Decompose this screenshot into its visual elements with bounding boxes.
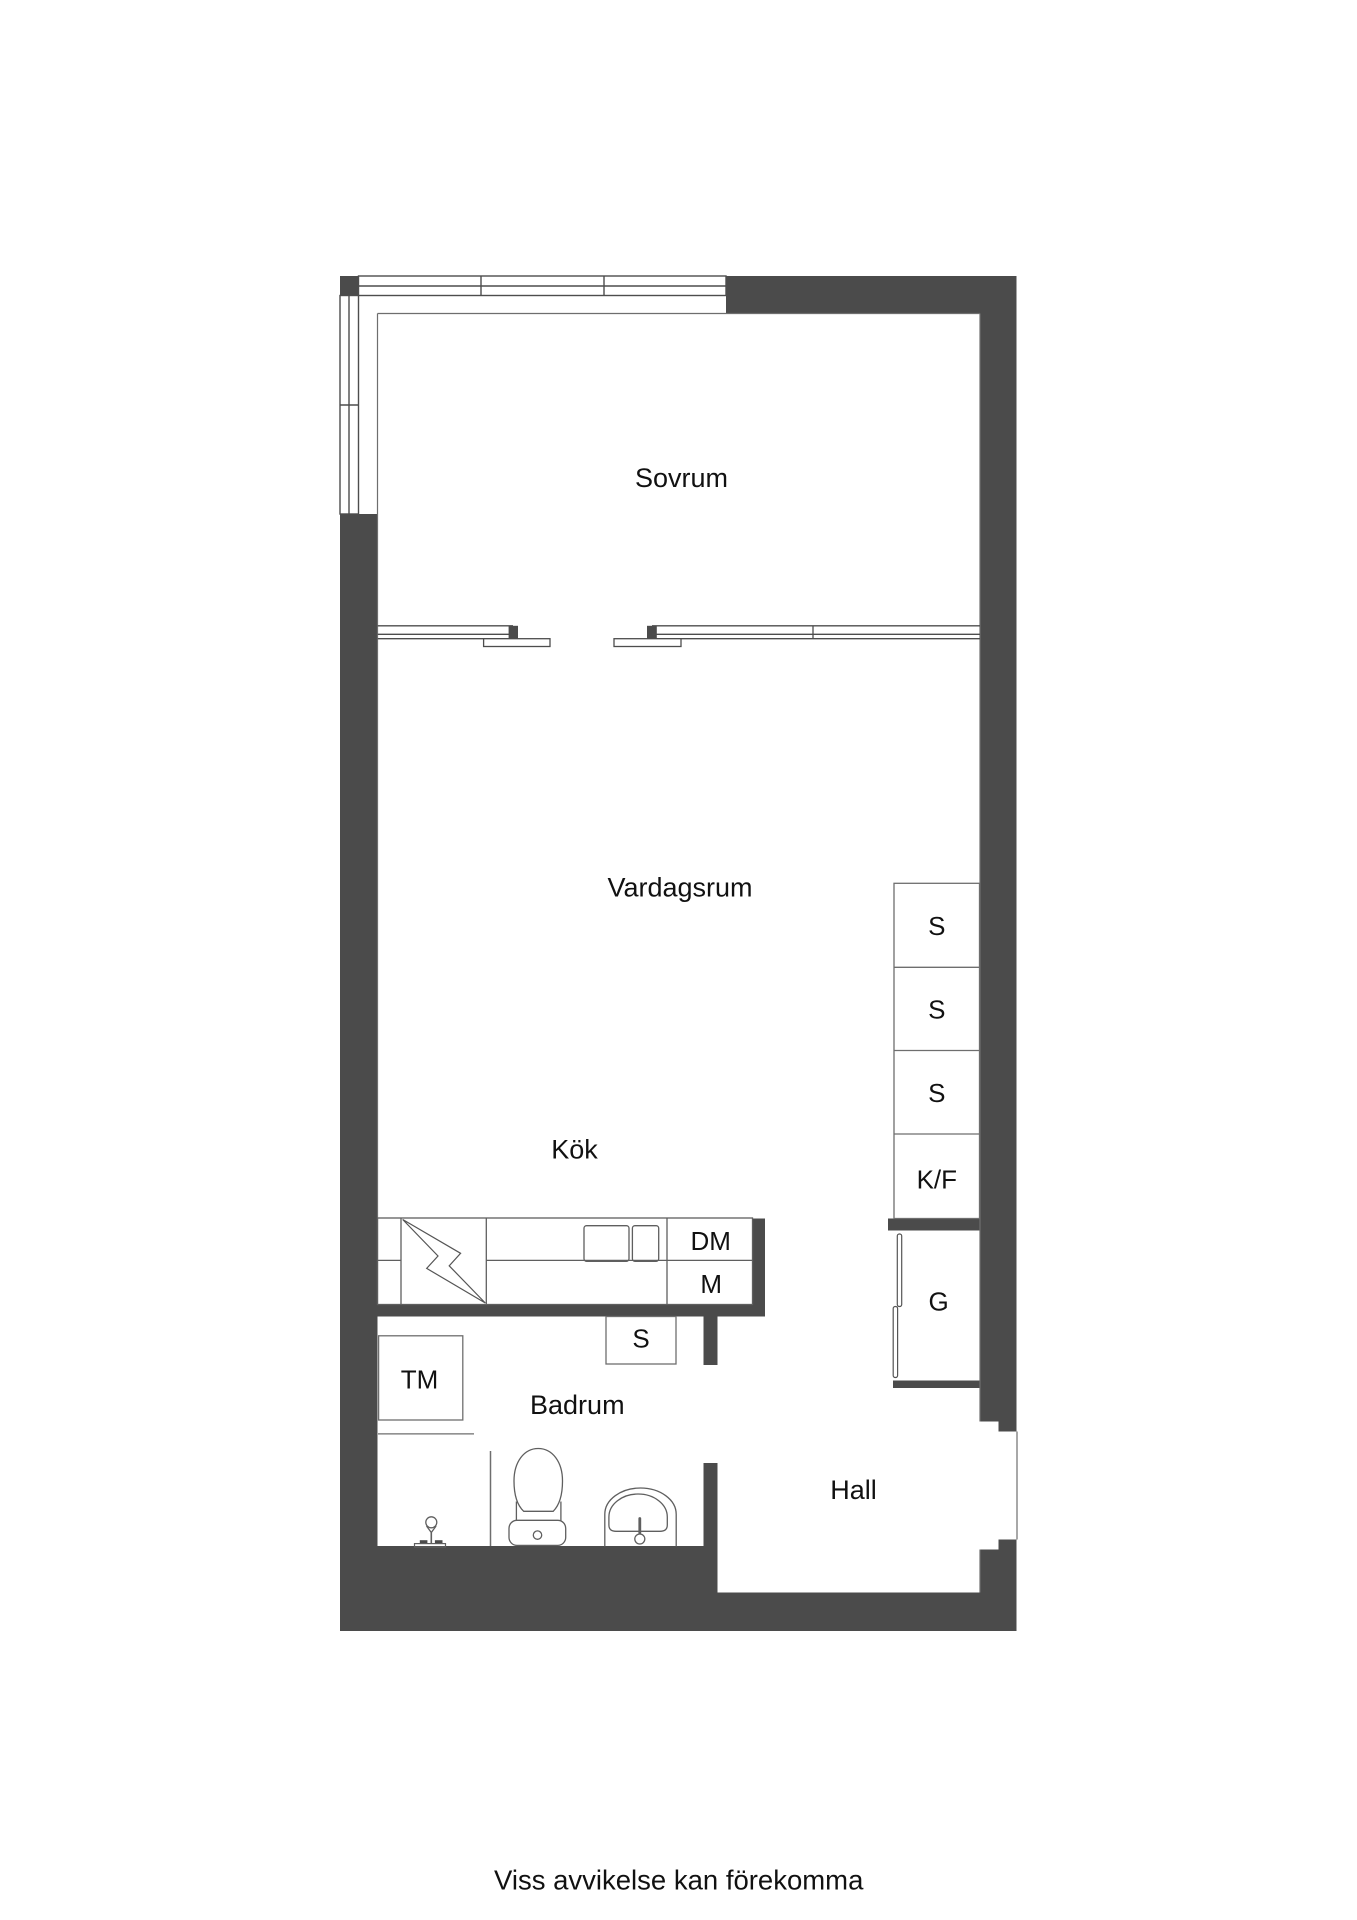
svg-text:S: S	[928, 911, 945, 941]
svg-text:Vardagsrum: Vardagsrum	[607, 873, 752, 903]
svg-text:S: S	[632, 1324, 649, 1354]
svg-text:M: M	[700, 1269, 722, 1299]
svg-text:S: S	[928, 1078, 945, 1108]
svg-text:S: S	[928, 994, 945, 1024]
svg-text:G: G	[928, 1287, 948, 1317]
svg-text:DM: DM	[690, 1226, 730, 1256]
svg-text:K/F: K/F	[917, 1164, 957, 1194]
svg-text:Hall: Hall	[830, 1475, 877, 1505]
svg-text:Sovrum: Sovrum	[635, 463, 728, 493]
svg-text:TM: TM	[401, 1365, 439, 1395]
svg-text:Viss avvikelse kan förekomma: Viss avvikelse kan förekomma	[494, 1865, 864, 1896]
svg-text:Kök: Kök	[551, 1135, 598, 1165]
svg-text:Badrum: Badrum	[530, 1390, 625, 1420]
